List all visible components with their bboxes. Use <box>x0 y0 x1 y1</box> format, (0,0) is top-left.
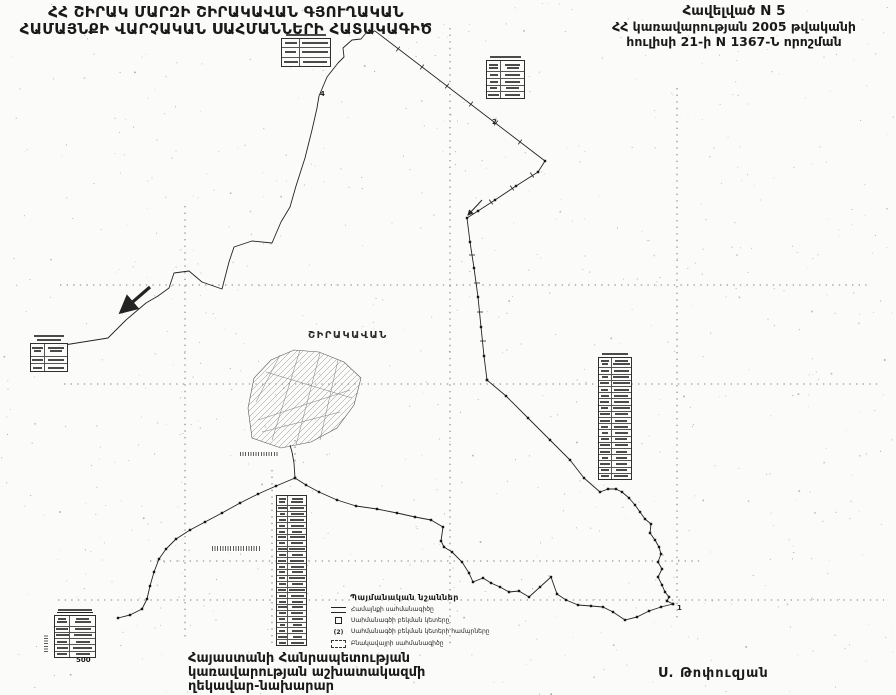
table-row <box>487 61 524 71</box>
point-square-symbol <box>330 617 347 624</box>
coordinate-table-northeast <box>486 56 525 99</box>
table-row <box>277 639 306 645</box>
coordinate-table-north <box>281 34 331 67</box>
circled-number-symbol: (2) <box>330 629 347 636</box>
boundary-west <box>58 31 375 346</box>
table-cell <box>282 58 300 66</box>
coordinate-table-west <box>30 335 68 372</box>
legend-item-label: Սահմանագծի բեկման կետերը <box>351 618 449 624</box>
scanned-map-sheet: { "header": { "title_line1": "ՀՀ ՇԻՐԱԿ Մ… <box>0 0 896 695</box>
document-title-line1: ՀՀ ՇԻՐԱԿ ՄԱՐԶԻ ՇԻՐԱԿԱՎԱՆ ԳՅՈՒՂԱԿԱՆ <box>0 4 452 21</box>
table-row <box>487 71 524 78</box>
point-number-label: 1 <box>677 604 682 612</box>
authority-line1: Հայաստանի Հանրապետության <box>188 652 425 666</box>
document-title-line2: ՀԱՄԱՅՆՔԻ ՎԱՐՉԱԿԱՆ ՍԱՀՄԱՆՆԵՐԻ ՀԱՏԱԿԱԳԻԾ <box>0 21 452 38</box>
table-row <box>55 616 95 626</box>
table-cell <box>300 48 330 56</box>
table-cell <box>300 58 330 66</box>
table-row <box>487 85 524 92</box>
table-cell <box>31 344 45 356</box>
table-cell <box>277 640 288 645</box>
table-cell <box>288 640 306 645</box>
table-cell <box>31 357 45 364</box>
legend-items: Համայնքի սահմանագիծըՍահմանագծի բեկման կե… <box>330 607 480 649</box>
table-row <box>487 91 524 98</box>
legend-item: Բնակավայրի սահմանագիծը <box>330 640 480 648</box>
table-row <box>282 47 330 56</box>
legend-item: Սահմանագծի բեկման կետերը <box>330 617 480 624</box>
direction-arrow <box>121 287 150 312</box>
map-legend: Պայմանական նշաններ Համայնքի սահմանագիծըՍ… <box>330 593 480 648</box>
table-title <box>601 353 630 355</box>
signature-name: Ս. Թոփուզյան <box>658 666 769 681</box>
table-cell <box>31 364 45 371</box>
table-cell <box>45 344 67 356</box>
table-cell <box>599 358 612 367</box>
illegible-label <box>240 452 278 456</box>
boundary-southeast <box>487 380 673 604</box>
scan-noise-layer <box>1 3 894 695</box>
table-cell <box>288 496 306 505</box>
table-row <box>282 57 330 66</box>
appendix-number: Հավելված N 5 <box>578 4 890 19</box>
legend-item: Համայնքի սահմանագիծը <box>330 607 480 613</box>
table-row <box>599 358 631 367</box>
legend-item-label: Սահմանագծի բեկման կետերի համարները <box>351 629 490 635</box>
table-cell <box>612 474 631 479</box>
table-cell <box>45 357 67 364</box>
table-cell <box>501 61 524 71</box>
authority-line3: ղեկավար-նախարար <box>188 680 425 694</box>
appendix-reference: Հավելված N 5 ՀՀ կառավարության 2005 թվակա… <box>578 4 890 49</box>
coordinate-grid <box>58 28 884 648</box>
scale-label: 500 <box>76 656 91 664</box>
point-number-label: 4 <box>320 90 325 98</box>
signing-authority: Հայաստանի Հանրապետության կառավարության ա… <box>188 652 425 694</box>
table-cell <box>612 358 631 367</box>
double-line-symbol <box>330 607 347 613</box>
table-cell <box>487 61 501 71</box>
boundary-southwest <box>118 478 295 618</box>
boundary-points <box>117 160 674 621</box>
coordinate-table-east <box>598 353 632 480</box>
table-row <box>277 496 306 505</box>
table-cell <box>55 652 70 657</box>
appendix-decree-line2: հուլիսի 21-ի N 1367-Ն որոշման <box>578 34 890 49</box>
illegible-label <box>212 546 260 551</box>
table-title <box>33 335 65 341</box>
legend-item: (2)Սահմանագծի բեկման կետերի համարները <box>330 629 480 636</box>
community-boundary <box>58 31 673 620</box>
table-row <box>487 78 524 85</box>
dashed-box-symbol <box>330 640 347 648</box>
table-cell <box>45 364 67 371</box>
table-cell <box>501 92 524 98</box>
coordinate-table-south <box>276 495 307 646</box>
table-title <box>489 56 522 58</box>
boundary-east <box>467 161 545 380</box>
illegible-label <box>44 634 48 652</box>
table-cell <box>282 48 300 56</box>
document-title: ՀՀ ՇԻՐԱԿ ՄԱՐԶԻ ՇԻՐԱԿԱՎԱՆ ԳՅՈՒՂԱԿԱՆ ՀԱՄԱՅ… <box>0 4 452 38</box>
point-number-label: 2 <box>492 118 497 126</box>
table-row <box>31 356 67 364</box>
appendix-decree-line1: ՀՀ կառավարության 2005 թվականի <box>578 19 890 34</box>
table-cell <box>282 39 300 47</box>
settlement-name-label: ՇԻՐԱԿԱՎԱՆ <box>308 330 388 341</box>
table-cell <box>487 92 501 98</box>
settlement-area <box>248 350 361 448</box>
map-canvas <box>0 0 896 695</box>
table-title <box>57 609 93 613</box>
table-cell <box>277 496 288 505</box>
table-row <box>599 473 631 479</box>
boundary-settlement_link <box>290 445 295 478</box>
table-cell <box>70 616 95 626</box>
legend-item-label: Համայնքի սահմանագիծը <box>351 607 434 613</box>
table-row <box>31 344 67 356</box>
table-row <box>31 363 67 371</box>
table-cell <box>300 39 330 47</box>
table-cell <box>599 474 612 479</box>
table-cell <box>55 616 70 626</box>
legend-item-label: Բնակավայրի սահմանագիծը <box>351 641 444 647</box>
authority-line2: կառավարության աշխատակազմի <box>188 666 425 680</box>
legend-title: Պայմանական նշաններ <box>350 593 480 602</box>
coordinate-table-southwest <box>54 609 96 658</box>
table-row <box>282 39 330 47</box>
